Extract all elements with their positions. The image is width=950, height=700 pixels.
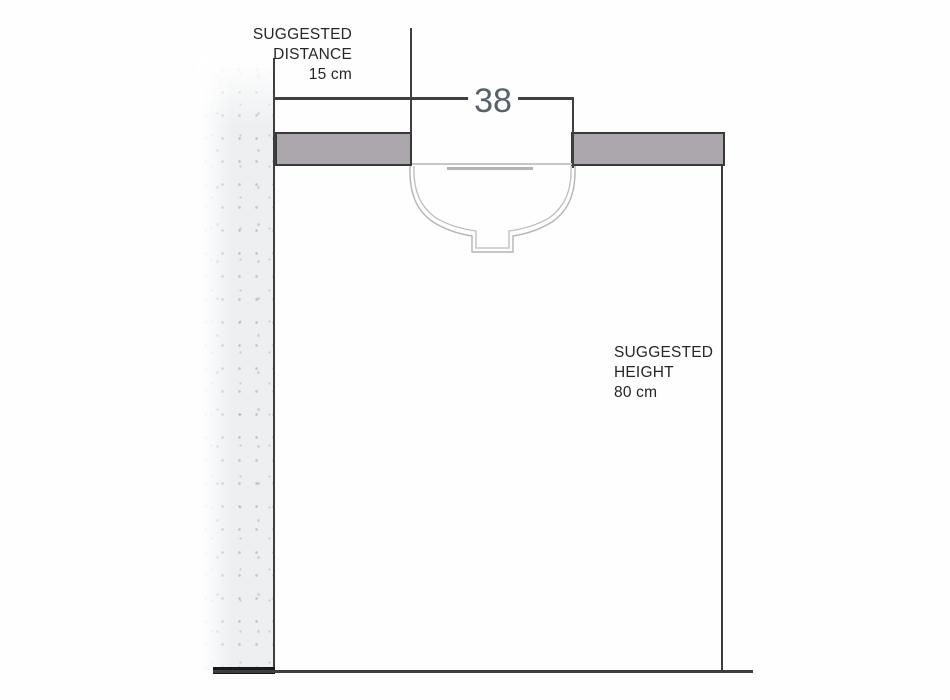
- basin-inner-wall: [414, 166, 571, 248]
- distance-label: SUGGESTED DISTANCE 15 cm: [215, 25, 352, 85]
- height-reference-line: [721, 166, 723, 673]
- countertop-left: [275, 132, 412, 166]
- distance-label-value: 15 cm: [215, 65, 352, 85]
- diagram-canvas: 38 SUGGESTED DISTANCE 15 cm SUGGESTED HE…: [0, 0, 950, 700]
- extension-line-basin-left: [410, 28, 412, 132]
- countertop-right: [571, 132, 725, 166]
- distance-label-line2: DISTANCE: [215, 45, 352, 65]
- width-dimension-value: 38: [468, 84, 518, 118]
- sink-basin: [400, 164, 585, 259]
- height-label-line1: SUGGESTED: [614, 343, 754, 363]
- extension-line-basin-right: [572, 97, 574, 168]
- distance-label-line1: SUGGESTED: [215, 25, 352, 45]
- height-label-line2: HEIGHT: [614, 363, 754, 383]
- dimension-line-38: [274, 97, 574, 100]
- wall: [197, 58, 275, 672]
- floor-line: [213, 670, 753, 673]
- height-label-value: 80 cm: [614, 383, 754, 403]
- basin-outer-wall: [410, 166, 575, 252]
- height-label: SUGGESTED HEIGHT 80 cm: [614, 343, 754, 403]
